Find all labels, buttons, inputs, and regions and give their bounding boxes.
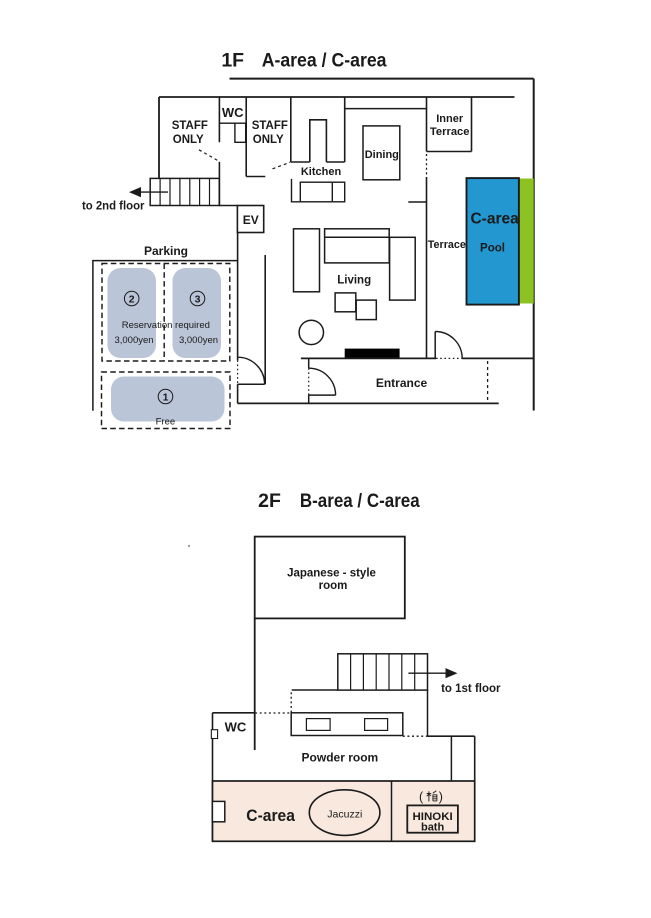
svg-text:1: 1: [163, 392, 169, 404]
svg-text:C-area: C-area: [246, 807, 295, 825]
svg-text:Jacuzzi: Jacuzzi: [327, 808, 362, 820]
svg-text:2: 2: [129, 294, 135, 306]
svg-text:WC: WC: [222, 105, 244, 120]
svg-text:Pool: Pool: [480, 243, 505, 255]
svg-text:STAFF: STAFF: [172, 120, 208, 132]
svg-text:2F: 2F: [258, 490, 281, 512]
svg-text:WC: WC: [225, 719, 247, 734]
svg-text:Entrance: Entrance: [376, 376, 428, 390]
svg-text:EV: EV: [243, 213, 259, 227]
svg-text:Inner: Inner: [436, 113, 464, 125]
svg-text:Japanese - style: Japanese - style: [287, 567, 376, 579]
svg-text:room: room: [319, 580, 348, 592]
svg-text:Powder room: Powder room: [302, 751, 379, 765]
svg-text:Terrace: Terrace: [428, 239, 466, 251]
svg-text:C-area: C-area: [471, 211, 520, 228]
svg-text:STAFF: STAFF: [252, 120, 288, 132]
svg-text:ONLY: ONLY: [253, 134, 284, 146]
svg-text:3,000yen: 3,000yen: [179, 335, 218, 346]
svg-text:3,000yen: 3,000yen: [114, 335, 153, 346]
svg-text:Parking: Parking: [144, 244, 188, 258]
svg-text:ONLY: ONLY: [173, 134, 204, 146]
svg-text:1F: 1F: [221, 50, 244, 72]
svg-text:Free: Free: [156, 417, 176, 428]
svg-text:Living: Living: [337, 274, 371, 286]
svg-text:A-area / C-area: A-area / C-area: [262, 50, 387, 72]
svg-text:to 1st floor: to 1st floor: [441, 683, 501, 695]
svg-text:Terrace: Terrace: [430, 126, 470, 138]
svg-text:Reservation required: Reservation required: [122, 320, 210, 331]
svg-text:): ): [439, 790, 443, 804]
svg-text:B-area / C-area: B-area / C-area: [300, 490, 420, 512]
svg-text:Kitchen: Kitchen: [301, 166, 342, 178]
svg-text:Dining: Dining: [365, 149, 399, 161]
svg-text:bath: bath: [421, 822, 445, 834]
svg-text:3: 3: [195, 294, 201, 306]
svg-text:to 2nd floor: to 2nd floor: [82, 201, 145, 213]
